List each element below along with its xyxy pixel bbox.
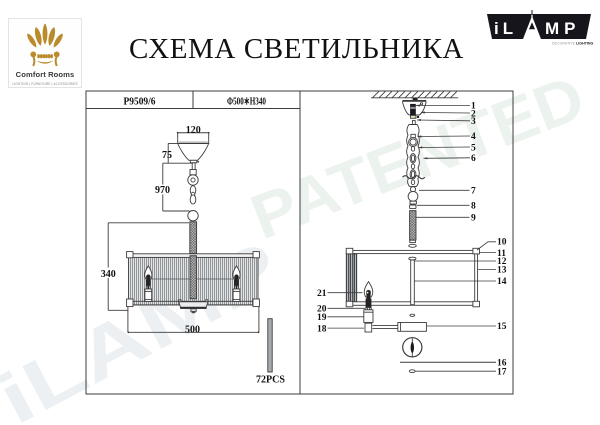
svg-text:5: 5 [471,143,476,153]
svg-text:500: 500 [185,325,200,336]
svg-text:72PCS: 72PCS [256,375,285,386]
svg-text:14: 14 [497,277,507,287]
svg-text:19: 19 [317,313,327,323]
svg-text:9: 9 [471,213,476,223]
svg-text:7: 7 [471,186,476,196]
svg-text:970: 970 [155,185,170,196]
svg-text:120: 120 [186,125,201,136]
svg-text:75: 75 [162,150,172,161]
svg-text:13: 13 [497,266,507,276]
svg-text:P9509/6: P9509/6 [124,96,156,108]
svg-text:8: 8 [471,201,476,211]
svg-text:Ф500∗H340: Ф500∗H340 [227,96,266,108]
svg-text:15: 15 [497,322,507,332]
svg-text:iL: iL [494,19,517,38]
svg-text:10: 10 [497,238,507,248]
svg-text:6: 6 [471,154,476,164]
svg-text:17: 17 [497,367,507,377]
svg-text:3: 3 [471,117,476,127]
svg-text:18: 18 [317,324,327,334]
svg-text:21: 21 [317,289,327,299]
svg-text:4: 4 [471,132,476,142]
svg-text:DECORATIVE LIGHTING: DECORATIVE LIGHTING [552,42,593,46]
svg-text:340: 340 [101,269,116,280]
svg-text:MP: MP [545,19,581,38]
